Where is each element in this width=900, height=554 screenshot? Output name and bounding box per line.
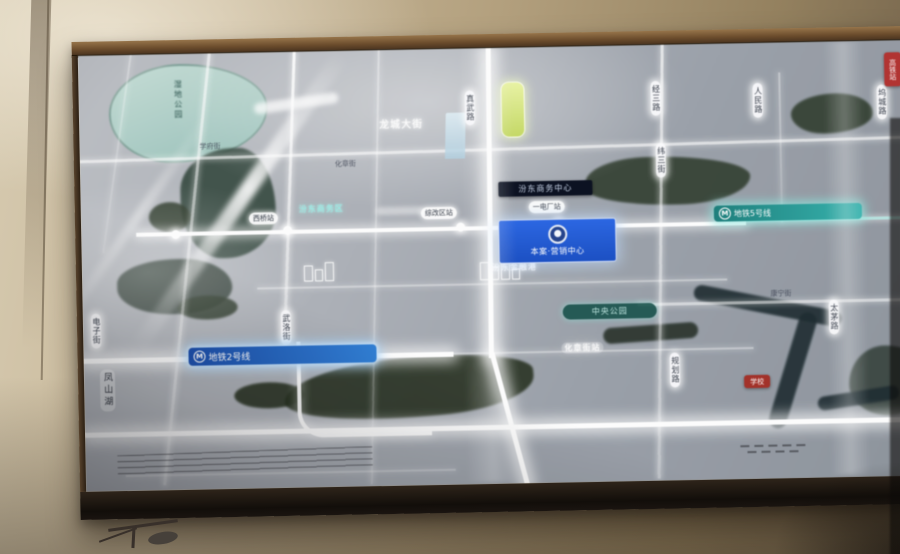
road-name-badge: 真武路 (464, 90, 475, 125)
lake-label: 湿地公园 (172, 80, 184, 120)
park-shape (603, 322, 699, 345)
photo-of-illuminated-map-board: 湿地公园 (0, 0, 900, 554)
station-pill: 综改区站 (421, 207, 457, 220)
road-line (283, 52, 296, 352)
park-pill-badge: 中央公园 (563, 303, 657, 320)
street-label: 康宁街 (770, 288, 791, 298)
glow-station-label: 化章街站 (561, 342, 603, 354)
metro-logo-icon: M (719, 207, 731, 219)
road-name-badge: 太茅路 (829, 299, 840, 334)
station-pill: 一电厂站 (529, 201, 565, 214)
main-road-line (486, 48, 494, 358)
river-segment (767, 310, 819, 430)
station-pill: 西桥站 (249, 212, 278, 225)
left-lake-label: 凤山湖 (100, 369, 116, 411)
station-dot (456, 223, 465, 232)
road-line (102, 55, 131, 253)
blurred-label (376, 206, 424, 215)
road-line (778, 72, 783, 222)
road-name-badge: 电子街 (91, 314, 102, 349)
project-label: 本案·营销中心 (530, 245, 584, 257)
park-shape (177, 295, 237, 320)
cbd-badge: 汾东商务中心 (498, 180, 592, 197)
glow-district-label: 汾东商务区 (299, 203, 344, 215)
foreground-object (88, 518, 208, 554)
metro-line2-badge: M 地铁2号线 (188, 344, 376, 366)
road-name-badge: 经三路 (650, 81, 661, 116)
building-cluster-icon (304, 261, 334, 282)
bottom-right-shadow (750, 444, 900, 554)
highway-badge (500, 81, 525, 137)
road-name-badge: 人民路 (752, 83, 763, 118)
poi-red-badge: 学校 (744, 375, 770, 388)
project-logo-icon (548, 225, 567, 244)
street-label: 学府街 (199, 141, 220, 151)
glare-smear (253, 92, 339, 115)
illuminated-city-map: 湿地公园 (78, 40, 900, 492)
poi-red-badge: 高铁站 (884, 52, 900, 86)
metro-line5-badge: M 地铁5号线 (714, 203, 862, 222)
metro-line5-label: 地铁5号线 (734, 207, 771, 219)
road-name-badge: 武洛街 (281, 310, 292, 345)
road-name-badge: 纬三街 (656, 143, 667, 178)
metro-line2-label: 地铁2号线 (208, 349, 250, 363)
road-name-badge: 规划路 (670, 352, 681, 387)
metro-logo-icon: M (193, 351, 205, 363)
park-shape (791, 93, 874, 135)
building-icon (445, 112, 466, 158)
road-name-badge: 坞城路 (876, 84, 887, 119)
park-shape (585, 155, 751, 206)
street-label: 化章街 (335, 159, 356, 169)
road-line (454, 347, 754, 355)
project-location-badge: 本案·营销中心 (498, 218, 617, 264)
river-segment (693, 284, 843, 328)
station-dot (171, 230, 180, 239)
glow-street-label: 龙城大街 (379, 115, 423, 131)
